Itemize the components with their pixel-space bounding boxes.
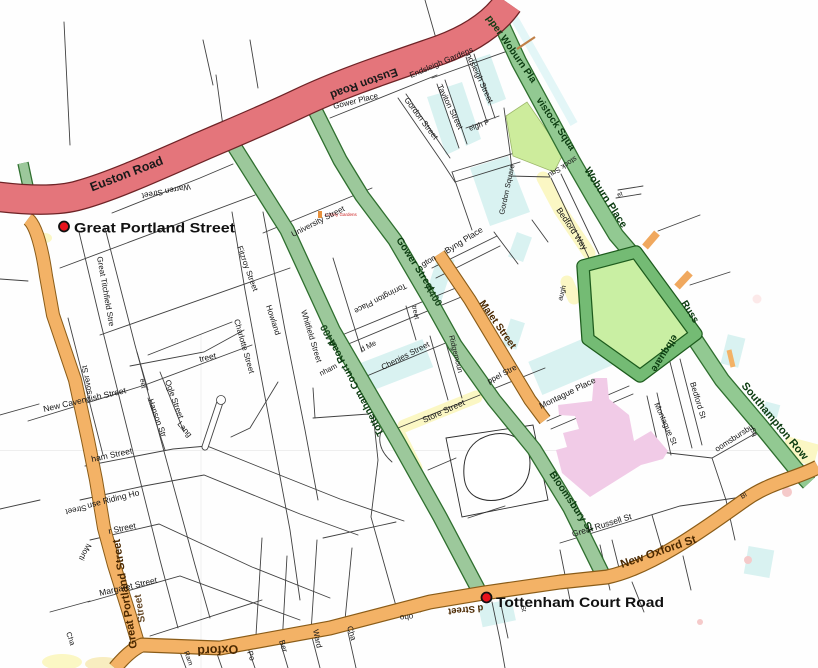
svg-text:oho: oho [399, 612, 414, 622]
svg-text:Oxford: Oxford [197, 642, 239, 658]
svg-text:Tottenham Court Road: Tottenham Court Road [496, 594, 664, 610]
svg-text:Great Portland Street: Great Portland Street [74, 220, 235, 236]
